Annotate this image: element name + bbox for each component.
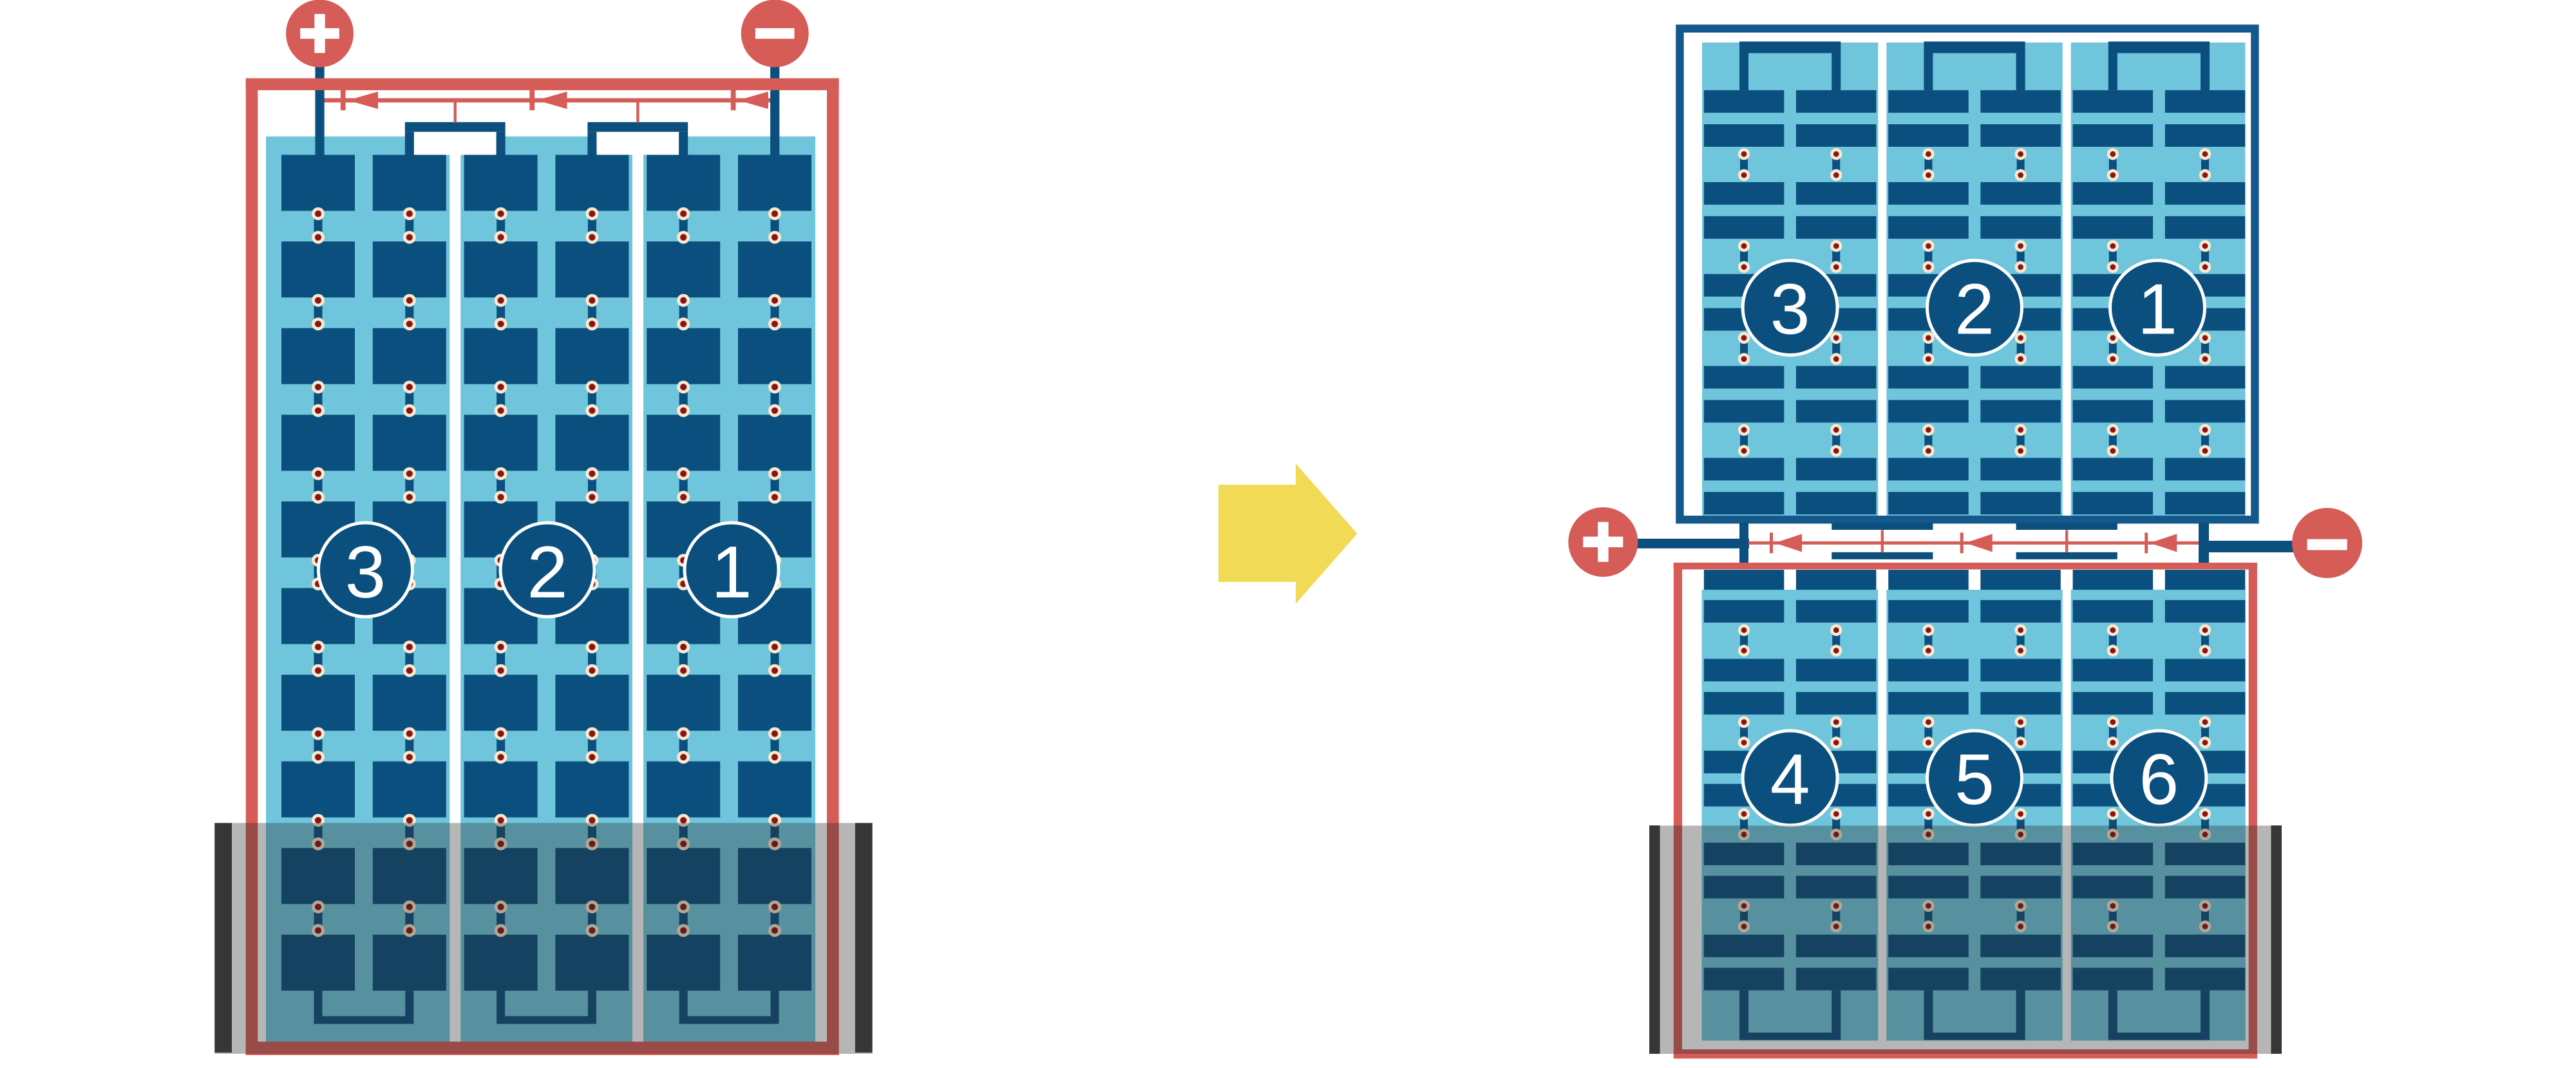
svg-text:1: 1 <box>2137 270 2177 350</box>
svg-text:5: 5 <box>1955 740 1994 820</box>
svg-text:2: 2 <box>1955 270 1994 350</box>
svg-text:3: 3 <box>345 532 386 614</box>
svg-text:2: 2 <box>527 532 567 614</box>
svg-text:6: 6 <box>2139 740 2179 820</box>
svg-text:3: 3 <box>1770 270 1810 350</box>
svg-text:4: 4 <box>1770 740 1810 820</box>
svg-text:1: 1 <box>711 532 752 614</box>
